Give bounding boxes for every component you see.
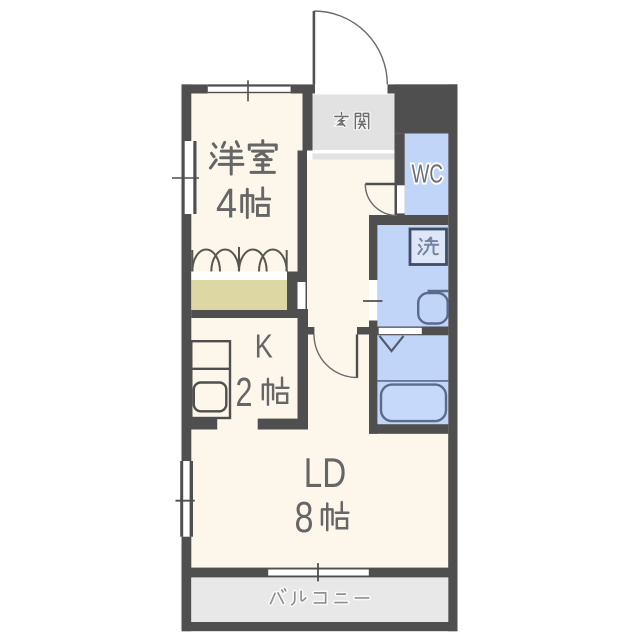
svg-text:WC: WC [412, 159, 444, 189]
svg-text:2: 2 [236, 369, 253, 415]
svg-text:K: K [255, 327, 273, 364]
svg-text:LD: LD [304, 449, 347, 496]
svg-text:8: 8 [295, 493, 314, 542]
svg-text:4: 4 [216, 179, 237, 226]
